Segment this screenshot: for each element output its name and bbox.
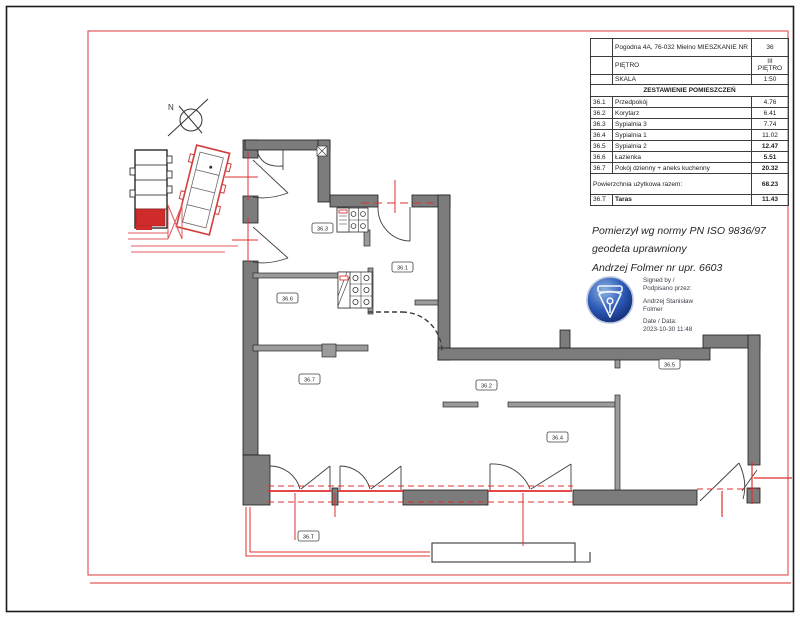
surveyor-note-line1: Pomierzył wg normy PN ISO 9836/97 <box>592 222 792 240</box>
svg-text:36.7: 36.7 <box>304 378 315 384</box>
total-label: Powierzchnia użytkowa razem: <box>591 174 752 195</box>
surveyor-note-line2: geodeta uprawniony <box>592 240 792 258</box>
north-label: N <box>168 103 174 112</box>
kitchen-fixtures <box>337 208 368 232</box>
floor-value: III PIĘTRO <box>752 57 789 75</box>
room-label-36-1: 36.1 <box>392 262 413 272</box>
terrace-step-outline <box>432 543 590 562</box>
signature-date-value: 2023-10-30 11:48 <box>643 326 693 334</box>
signature-text: Signed by / Podpisano przez: Andrzej Sta… <box>643 275 693 339</box>
svg-text:36.T: 36.T <box>303 535 315 541</box>
svg-text:36.4: 36.4 <box>552 436 563 442</box>
table-header-row: ZESTAWIENIE POMIESZCZEŃ <box>591 85 789 97</box>
north-arrow: N <box>168 99 208 136</box>
room-label-36-7: 36.7 <box>299 374 320 384</box>
svg-text:36.5: 36.5 <box>664 363 675 369</box>
terrace-row: 36.T Taras 11.43 <box>591 195 789 205</box>
table-row: 36.7 Pokój dzienny + aneks kuchenny 20.3… <box>591 163 789 174</box>
table-row: 36.3 Sypialnia 3 7.74 <box>591 119 789 130</box>
room-label-36-T: 36.T <box>298 531 319 541</box>
highlighted-unit <box>136 209 165 226</box>
table-row: Pogodna 4A, 76-032 Mielno MIESZKANIE NR … <box>591 39 789 57</box>
total-area: 68.23 <box>752 174 789 195</box>
table-row: PIĘTRO III PIĘTRO <box>591 57 789 75</box>
table-row: 36.6 Łazienka 5.51 <box>591 152 789 163</box>
svg-text:36.2: 36.2 <box>481 384 492 390</box>
title-block-table: Pogodna 4A, 76-032 Mielno MIESZKANIE NR … <box>590 38 789 206</box>
scale-label: SKALA <box>613 75 752 85</box>
digital-signature-stamp: Signed by / Podpisano przez: Andrzej Sta… <box>585 275 693 339</box>
rooms-list-header: ZESTAWIENIE POMIESZCZEŃ <box>591 85 789 97</box>
bathroom-fixtures <box>338 272 372 308</box>
signer-name-line1: Andrzej Stanisław <box>643 298 693 306</box>
table-row: 36.5 Sypialnia 2 12.47 <box>591 141 789 152</box>
table-row: 36.4 Sypialnia 1 11.02 <box>591 130 789 141</box>
signed-by-en: Signed by / <box>643 277 693 285</box>
address-label: Pogodna 4A, 76-032 Mielno MIESZKANIE NR <box>613 39 752 57</box>
svg-text:36.3: 36.3 <box>317 227 328 233</box>
table-row: SKALA 1:50 <box>591 75 789 85</box>
surveyor-note: Pomierzył wg normy PN ISO 9836/97 geodet… <box>592 222 792 277</box>
room-label-36-2: 36.2 <box>476 380 497 390</box>
room-label-36-3: 36.3 <box>312 223 333 233</box>
signed-by-pl: Podpisano przez: <box>643 285 693 293</box>
terrace-red-outline <box>246 507 430 556</box>
room-label-36-5: 36.5 <box>659 359 680 369</box>
svg-text:36.1: 36.1 <box>397 266 408 272</box>
drawing-sheet: N <box>0 0 800 618</box>
floor-label: PIĘTRO <box>613 57 752 75</box>
room-label-36-6: 36.6 <box>277 293 298 303</box>
scale-value: 1:50 <box>752 75 789 85</box>
total-row: Powierzchnia użytkowa razem: 68.23 <box>591 174 789 195</box>
room-label-36-4: 36.4 <box>547 432 568 442</box>
signer-name-line2: Folmer <box>643 306 693 314</box>
table-row: 36.2 Korytarz 6.41 <box>591 108 789 119</box>
site-plan <box>128 144 238 252</box>
signature-date-label: Date / Data: <box>643 318 693 326</box>
pen-nib-icon <box>585 275 635 325</box>
svg-text:36.6: 36.6 <box>282 297 293 303</box>
table-row: 36.1 Przedpokój 4.76 <box>591 97 789 108</box>
site-building-left <box>130 150 172 230</box>
apartment-number: 36 <box>752 39 789 57</box>
